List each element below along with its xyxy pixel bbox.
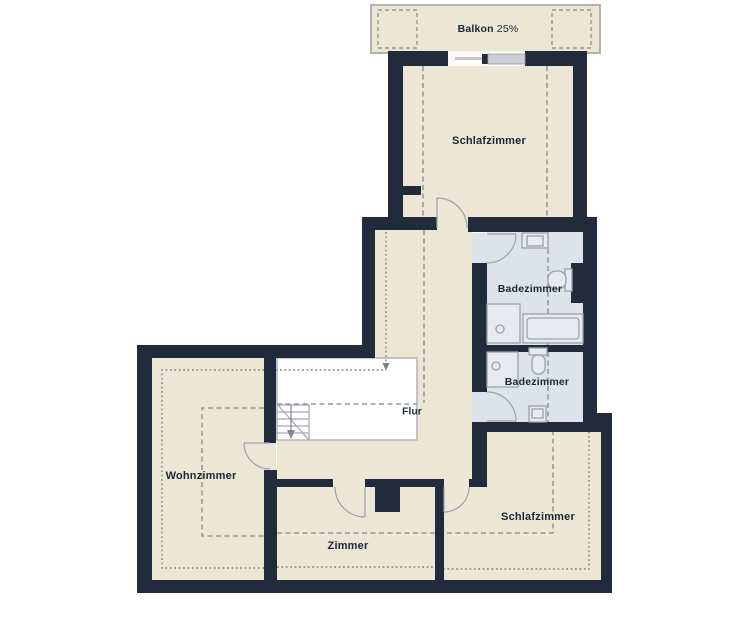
label-balkon: Balkon25%	[458, 23, 519, 35]
bathtub	[523, 314, 583, 343]
floor-schlafzimmer-bottom-lobe	[487, 430, 601, 486]
floor-schlafzimmer-bottom	[443, 480, 601, 580]
label-schlafzimmer-bottom: Schlafzimmer	[501, 511, 575, 523]
toilet-lower-bath	[529, 348, 547, 374]
sink-upper-bath	[522, 233, 548, 248]
label-balkon-percent: 25%	[497, 23, 519, 35]
floor-wohnzimmer	[152, 356, 266, 580]
label-balkon-text: Balkon	[458, 23, 494, 35]
label-badezimmer-lower: Badezimmer	[505, 376, 569, 388]
shower-upper-bath	[487, 304, 520, 343]
sink-lower-bath	[529, 406, 546, 422]
label-wohnzimmer: Wohnzimmer	[166, 470, 237, 482]
floor-zimmer	[277, 480, 435, 580]
floor-plan-drawing	[0, 0, 750, 625]
label-zimmer: Zimmer	[328, 540, 369, 552]
label-schlafzimmer-top: Schlafzimmer	[452, 135, 526, 147]
floor-plan: Balkon25% Schlafzimmer Badezimmer Badezi…	[0, 0, 750, 625]
label-badezimmer-upper: Badezimmer	[498, 283, 562, 295]
label-flur: Flur	[402, 407, 422, 418]
chimney-block	[375, 487, 400, 512]
